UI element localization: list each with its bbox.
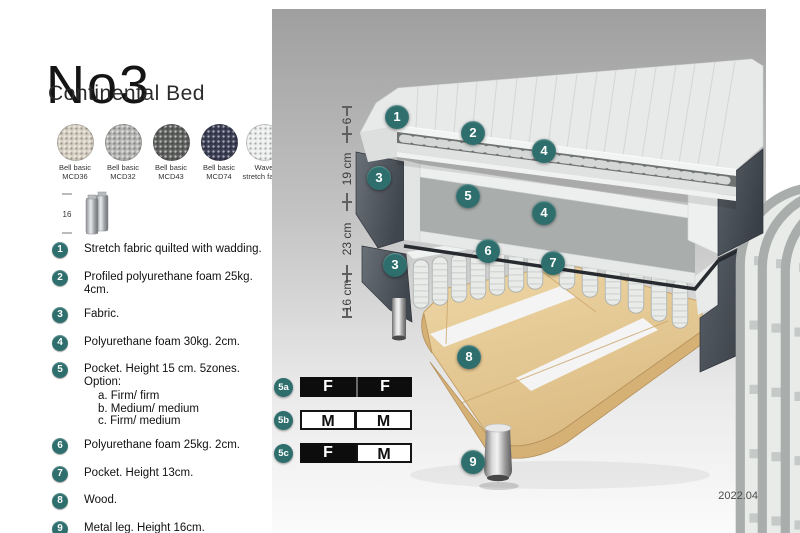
- callout-1-stretch-fabric: 1: [385, 105, 409, 129]
- measure-middle: 19 cm: [340, 139, 354, 199]
- callout-9-metal-leg: 9: [461, 450, 485, 474]
- callout-4-foam-lower: 4: [532, 201, 556, 225]
- metal-leg-back: [392, 298, 406, 341]
- callout-7-pocket: 7: [541, 251, 565, 275]
- bed-shadow: [410, 461, 710, 489]
- callout-4-foam-upper: 4: [532, 139, 556, 163]
- firmness-cell: M: [356, 410, 412, 430]
- callout-2-profiled-foam: 2: [461, 121, 485, 145]
- firmness-cell: M: [356, 443, 412, 463]
- callout-3-fabric-lower: 3: [383, 253, 407, 277]
- callout-3-fabric-upper: 3: [367, 166, 391, 190]
- measure-leg: 16 cm: [340, 266, 354, 326]
- firmness-cell: F: [356, 377, 412, 397]
- callout-8-wood: 8: [457, 345, 481, 369]
- callout-6-foam: 6: [476, 239, 500, 263]
- spec-sheet-page: No3 Continental Bed Bell basicMCD36 Bell…: [0, 0, 800, 533]
- callout-5-pocket: 5: [456, 184, 480, 208]
- measure-topper: 6: [340, 111, 354, 131]
- firmness-row-label: 5b: [274, 411, 293, 430]
- middle-frame-post-left: [404, 160, 420, 242]
- measure-lower: 23 cm: [340, 209, 354, 269]
- version-stamp: 2022.04: [718, 490, 758, 502]
- firmness-cell: F: [300, 443, 356, 463]
- firmness-cell: M: [300, 410, 356, 430]
- firmness-row-label: 5a: [274, 378, 293, 397]
- firmness-row-label: 5c: [274, 444, 293, 463]
- firmness-cell: F: [300, 377, 356, 397]
